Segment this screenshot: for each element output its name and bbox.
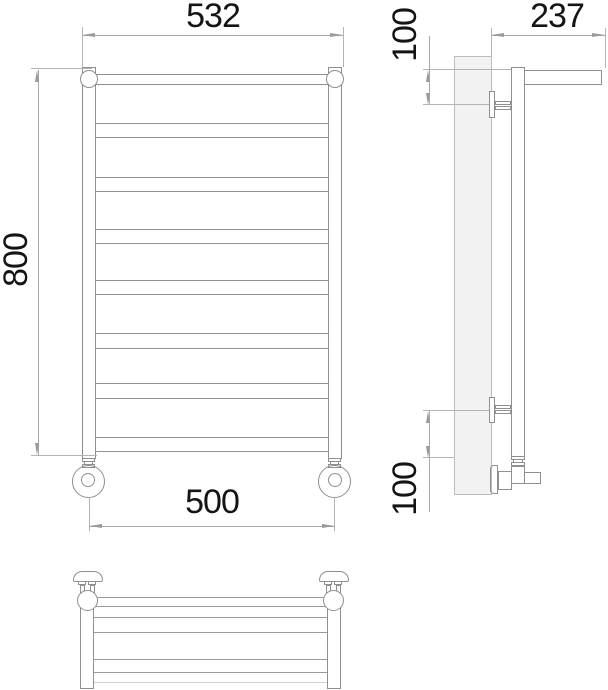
dim-front-height-label: 800	[0, 233, 33, 287]
plan-shelf-bar-line	[94, 682, 327, 683]
side-valve-outlet	[524, 472, 541, 484]
plan-shelf-bar-line	[94, 597, 327, 598]
side-bottom-bracket-stem	[495, 405, 511, 409]
dim-800-extension-bottom	[31, 455, 97, 456]
dim-237-extension-left	[491, 28, 492, 56]
dim-100-top-extension-upper	[423, 69, 512, 70]
front-right-valve-inner	[328, 473, 342, 487]
dim-side-depth-label: 237	[530, 0, 584, 33]
front-shelf-front-bar	[96, 74, 329, 85]
dim-100-bottom-line	[429, 411, 430, 512]
plan-pivot-right	[323, 590, 344, 611]
dim-800-extension-top	[31, 68, 92, 69]
dim-side-top-offset-label: 100	[388, 8, 422, 62]
dim-532-arrow-left	[82, 33, 95, 37]
dim-500-arrow-left	[89, 524, 102, 528]
dim-100-top-arrow-down	[426, 93, 430, 105]
dim-800-arrow-up	[35, 70, 39, 82]
side-top-bracket-stem	[495, 106, 511, 110]
plan-shelf-bar-line	[94, 606, 327, 607]
dim-500-extension-right	[334, 497, 335, 531]
dim-532-line	[82, 35, 343, 36]
technical-drawing-canvas: 237 100 100 532 800 500	[0, 0, 608, 690]
dim-237-arrow-left	[491, 33, 504, 37]
dim-532-extension-left	[82, 27, 83, 67]
plan-shelf-bar-line	[94, 617, 327, 618]
dim-100-bottom-extension-upper	[423, 410, 495, 411]
dim-100-bottom-arrow-down	[426, 446, 430, 458]
dim-800-arrow-down	[35, 443, 39, 455]
front-rung	[96, 383, 329, 399]
front-post-left	[82, 67, 96, 459]
side-top-bracket-stem	[495, 101, 511, 105]
side-shelf-arm-tube	[524, 70, 602, 85]
side-valve-wall-flange	[490, 465, 498, 494]
dim-side-bottom-offset-label: 100	[388, 462, 422, 516]
dim-front-top-width-label: 532	[186, 0, 240, 33]
front-rung	[96, 437, 329, 452]
front-rung	[96, 123, 329, 138]
side-bottom-bracket-stem	[495, 410, 511, 414]
dim-100-top-arrow-up	[426, 70, 430, 82]
front-corner-joint-right	[326, 70, 344, 88]
dim-237-line	[491, 35, 605, 36]
plan-shelf-bar-line	[94, 632, 327, 633]
front-rung	[96, 280, 329, 295]
dim-100-bottom-arrow-up	[426, 411, 430, 423]
side-valve-connector	[498, 471, 512, 490]
dim-237-extension-right	[605, 28, 606, 68]
dim-front-bottom-width-label: 500	[185, 485, 239, 519]
plan-shelf-bar-line	[94, 659, 327, 660]
front-rung	[96, 229, 329, 244]
side-wall	[454, 56, 492, 495]
dim-532-arrow-right	[330, 33, 343, 37]
front-post-right	[328, 67, 342, 459]
dim-500-line	[89, 526, 335, 527]
plan-pivot-left	[77, 590, 98, 611]
side-post-tube	[511, 67, 525, 457]
dim-500-extension-left	[89, 497, 90, 531]
front-left-valve-inner	[81, 473, 95, 487]
dim-532-extension-right	[343, 27, 344, 67]
plan-shelf-bar-line	[94, 672, 327, 673]
dim-237-arrow-right	[592, 33, 605, 37]
front-rung	[96, 333, 329, 349]
front-corner-joint-left	[80, 70, 98, 88]
side-valve-body	[511, 466, 525, 484]
front-rung	[96, 177, 329, 192]
dim-100-top-extension-lower	[423, 104, 494, 105]
dim-800-line	[38, 70, 39, 455]
